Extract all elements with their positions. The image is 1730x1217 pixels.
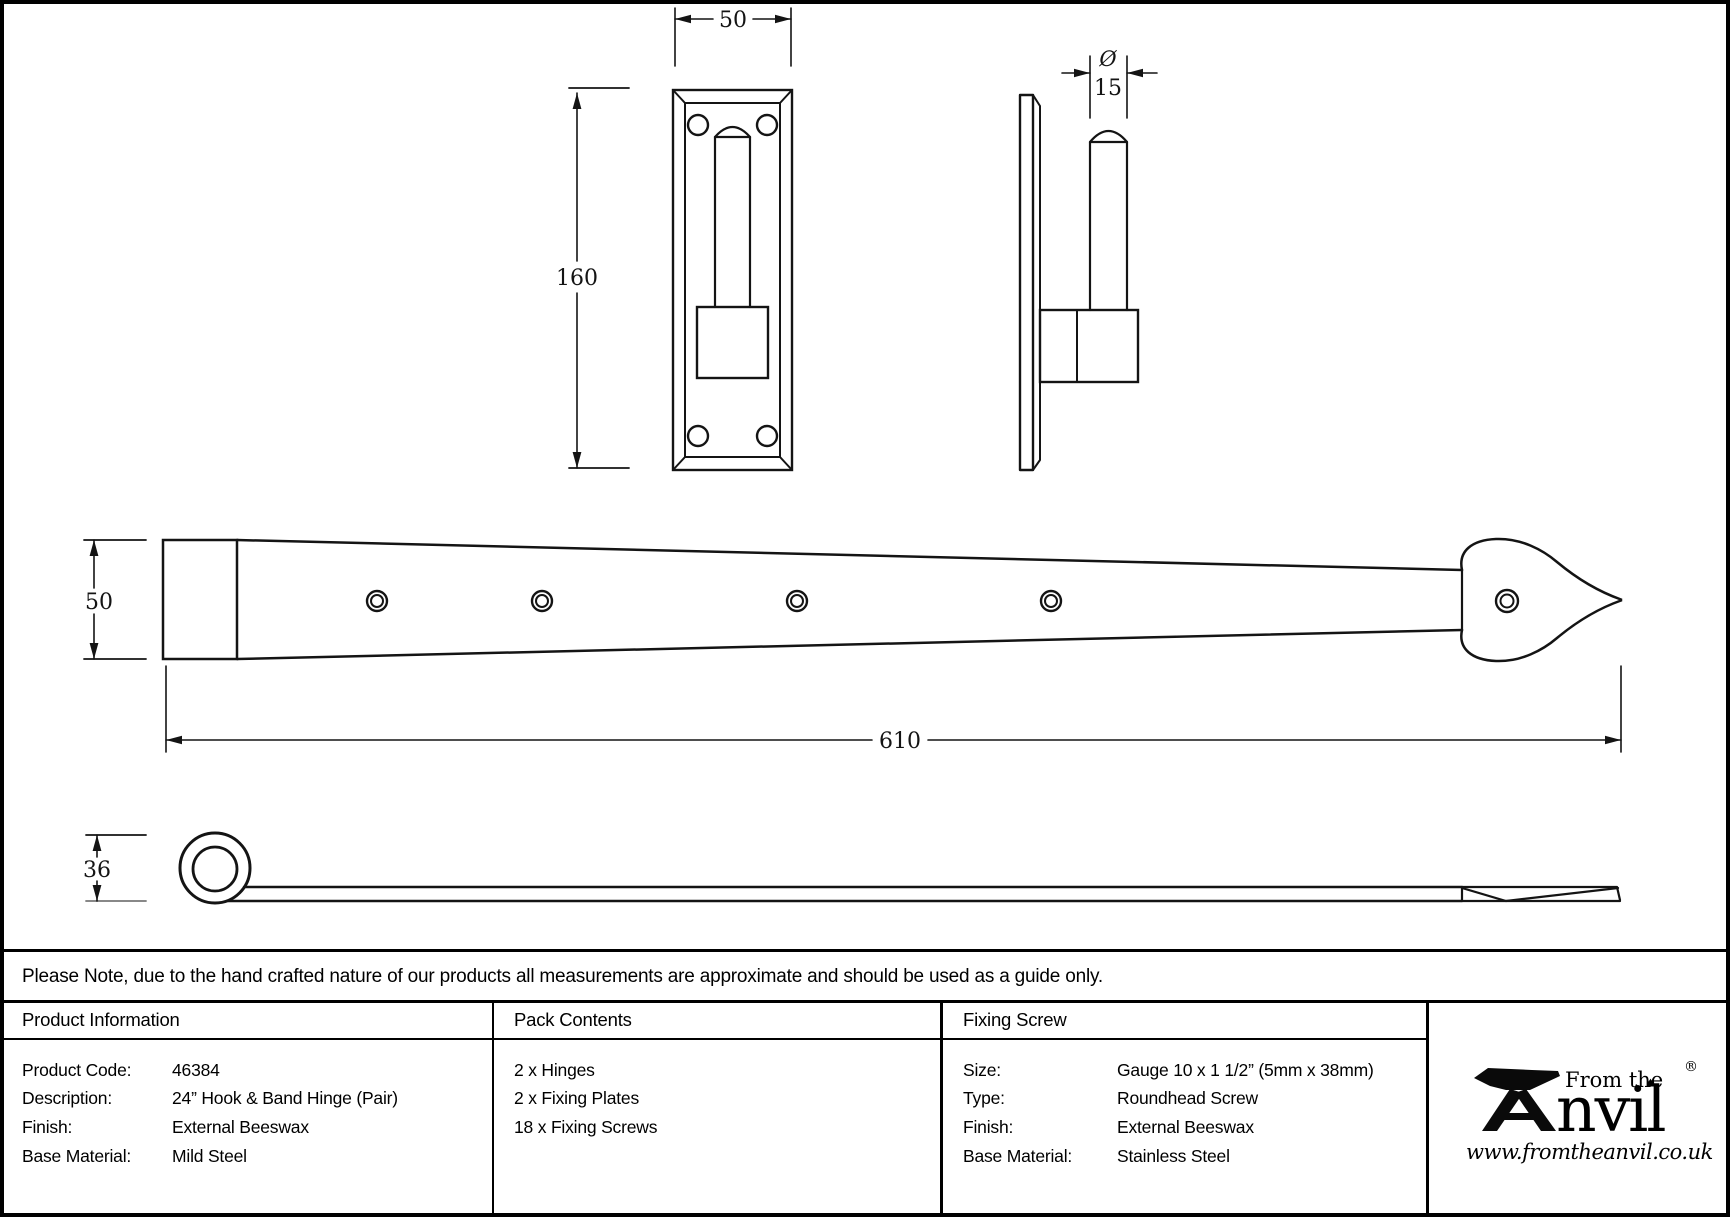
field-label: Finish: bbox=[22, 1117, 172, 1138]
dim-band-side-height: 36 bbox=[83, 835, 146, 901]
anvil-icon bbox=[1472, 1063, 1562, 1135]
column-divider-3 bbox=[1426, 1000, 1429, 1213]
product-spec-sheet: 50 160 Ø 15 bbox=[0, 0, 1730, 1217]
band-taper bbox=[237, 540, 1462, 659]
field-value: Gauge 10 x 1 1/2” (5mm x 38mm) bbox=[1117, 1060, 1374, 1081]
field-label: Size: bbox=[963, 1060, 1117, 1081]
field-value: 46384 bbox=[172, 1060, 220, 1081]
field-label: Base Material: bbox=[22, 1146, 172, 1167]
screw-hole bbox=[757, 115, 777, 135]
pin-dome bbox=[715, 127, 750, 137]
dim-plate-height-label: 160 bbox=[556, 266, 598, 291]
field-label: Base Material: bbox=[963, 1146, 1117, 1167]
pin-shaft-side bbox=[1090, 142, 1127, 310]
header-product-information: Product Information bbox=[22, 1002, 180, 1038]
field-value: External Beeswax bbox=[1117, 1117, 1254, 1138]
table-row: Base Material: Mild Steel bbox=[22, 1142, 398, 1171]
curl-inner bbox=[193, 847, 237, 891]
dim-band-width-label: 50 bbox=[85, 590, 113, 615]
technical-drawing: 50 160 Ø 15 bbox=[0, 0, 1730, 949]
dim-plate-height: 160 bbox=[556, 88, 629, 468]
dim-pin-dia-label: 15 bbox=[1094, 76, 1122, 101]
field-value: 24” Hook & Band Hinge (Pair) bbox=[172, 1088, 398, 1109]
header-row-divider bbox=[0, 1038, 1429, 1040]
dim-plate-width-label: 50 bbox=[719, 8, 747, 33]
note-row-bottom-line bbox=[0, 1000, 1730, 1003]
band-side-tip bbox=[1462, 887, 1620, 901]
dim-band-width: 50 bbox=[84, 540, 146, 659]
table-row: Base Material: Stainless Steel bbox=[963, 1142, 1374, 1171]
field-label: Description: bbox=[22, 1088, 172, 1109]
band-side-view bbox=[180, 833, 1620, 903]
band-screw-holes bbox=[367, 590, 1518, 612]
field-value: Stainless Steel bbox=[1117, 1146, 1230, 1167]
page-border-left bbox=[0, 0, 4, 1217]
dim-band-length: 610 bbox=[166, 666, 1621, 754]
field-value: Mild Steel bbox=[172, 1146, 247, 1167]
brand-name: nvil bbox=[1556, 1078, 1664, 1141]
header-pack-contents: Pack Contents bbox=[514, 1002, 632, 1038]
table-row: Description: 24” Hook & Band Hinge (Pair… bbox=[22, 1085, 398, 1114]
table-row: Size: Gauge 10 x 1 1/2” (5mm x 38mm) bbox=[963, 1056, 1374, 1085]
band-socket bbox=[163, 540, 237, 659]
measurement-note: Please Note, due to the hand crafted nat… bbox=[22, 954, 1103, 1000]
column-divider-1 bbox=[492, 1000, 494, 1213]
field-label: Product Code: bbox=[22, 1060, 172, 1081]
band-side-bar bbox=[228, 887, 1462, 901]
field-label: Finish: bbox=[963, 1117, 1117, 1138]
dim-band-side-height-label: 36 bbox=[83, 858, 111, 883]
table-row: Product Code: 46384 bbox=[22, 1056, 398, 1085]
page-border-top bbox=[0, 0, 1730, 4]
product-information-cell: Product Code: 46384 Description: 24” Hoo… bbox=[22, 1056, 398, 1170]
screw-hole bbox=[757, 426, 777, 446]
field-label: Type: bbox=[963, 1088, 1117, 1109]
column-divider-2 bbox=[940, 1000, 943, 1213]
band-plan-view bbox=[163, 539, 1621, 661]
screw-hole bbox=[688, 426, 708, 446]
plate-bevel-inner bbox=[685, 103, 780, 457]
pack-contents-cell: 2 x Hinges 2 x Fixing Plates 18 x Fixing… bbox=[514, 1056, 657, 1142]
table-row: Type: Roundhead Screw bbox=[963, 1085, 1374, 1114]
table-row: Finish: External Beeswax bbox=[22, 1113, 398, 1142]
list-item: 2 x Fixing Plates bbox=[514, 1085, 657, 1114]
spear-head bbox=[1461, 539, 1621, 661]
dim-pin-diameter: Ø 15 bbox=[1062, 47, 1157, 118]
pin-shaft bbox=[715, 137, 750, 307]
header-fixing-screw: Fixing Screw bbox=[963, 1002, 1067, 1038]
dim-plate-width: 50 bbox=[675, 8, 791, 66]
brand-website: www.fromtheanvil.co.uk bbox=[1466, 1140, 1713, 1164]
field-value: Roundhead Screw bbox=[1117, 1088, 1258, 1109]
pin-dome-side bbox=[1090, 131, 1127, 142]
plate-bevel-corners bbox=[673, 90, 792, 470]
dim-pin-dia-symbol: Ø bbox=[1098, 47, 1117, 71]
page-border-bottom bbox=[0, 1213, 1730, 1217]
pin-block-side bbox=[1040, 310, 1138, 382]
pin-block bbox=[697, 307, 768, 378]
fixing-screw-cell: Size: Gauge 10 x 1 1/2” (5mm x 38mm) Typ… bbox=[963, 1056, 1374, 1170]
table-row: Finish: External Beeswax bbox=[963, 1113, 1374, 1142]
list-item: 18 x Fixing Screws bbox=[514, 1113, 657, 1142]
fixing-plate-side-view bbox=[1020, 95, 1138, 470]
page-border-right bbox=[1726, 0, 1730, 1217]
screw-hole bbox=[688, 115, 708, 135]
field-value: External Beeswax bbox=[172, 1117, 309, 1138]
fixing-plate-front-view bbox=[673, 90, 792, 470]
note-row-top-line bbox=[0, 949, 1730, 952]
plate-side-bar bbox=[1020, 95, 1033, 470]
curl-outer bbox=[180, 833, 250, 903]
list-item: 2 x Hinges bbox=[514, 1056, 657, 1085]
registered-trademark-icon: ® bbox=[1684, 1059, 1698, 1075]
plate-outline bbox=[673, 90, 792, 470]
dim-band-length-label: 610 bbox=[879, 729, 921, 754]
